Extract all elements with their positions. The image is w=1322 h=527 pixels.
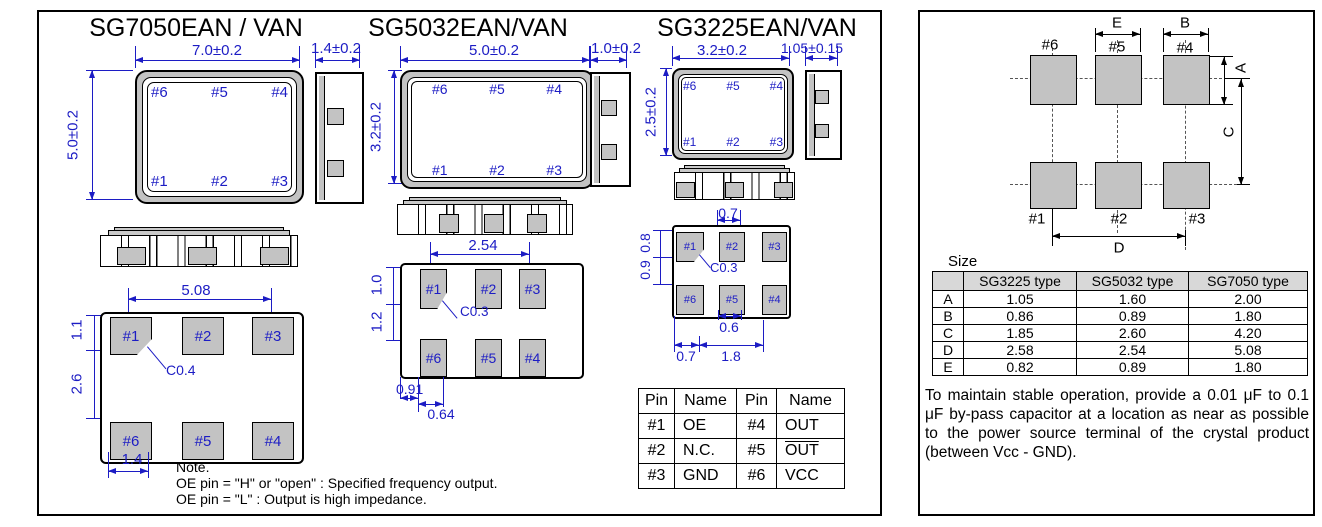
dim-label-c: C <box>1221 127 1238 138</box>
lid-edge <box>594 76 600 183</box>
pin-label: #2 <box>726 135 739 149</box>
pin-label: #4 <box>271 84 288 101</box>
size-table-cell: 0.86 <box>964 308 1077 325</box>
sg5032-top-view: #6 #5 #4 #1 #2 #3 <box>400 70 594 189</box>
sg5032-title: SG5032EAN/VAN <box>368 14 568 43</box>
dim-ext-line <box>1185 230 1186 246</box>
pin-table-cell: VCC <box>777 464 845 489</box>
pin-label: #6 <box>683 79 696 93</box>
sg3225-side-view <box>805 70 842 160</box>
size-table-cell: 1.80 <box>1189 359 1308 376</box>
castellation <box>815 124 829 138</box>
dim-arrow-a <box>1224 57 1225 105</box>
terminal-pad <box>484 214 504 233</box>
pin-label: #3 <box>271 173 288 190</box>
size-table-cell: 4.20 <box>1189 325 1308 342</box>
pin-table-header: Name <box>777 389 845 414</box>
sg5032-side-dim: 1.0±0.2 <box>591 40 641 57</box>
dim-ext-line <box>86 70 133 71</box>
size-table-header <box>933 272 964 291</box>
pin-table-cell: #1 <box>639 414 675 439</box>
size-table-cell: B <box>933 308 964 325</box>
sg7050-pad-width-dim: 1.4 <box>122 451 143 468</box>
size-table-cell: D <box>933 342 964 359</box>
dim-ext-line <box>86 199 133 200</box>
castellation <box>327 160 344 177</box>
size-table-cell: E <box>933 359 964 376</box>
dim-label-b: B <box>1180 15 1190 32</box>
dim-line <box>400 60 590 61</box>
pin-table-cell: #3 <box>639 464 675 489</box>
note-heading: Note. <box>176 459 497 475</box>
dim-arrow-c <box>1241 79 1242 185</box>
terminal-pad <box>188 247 217 265</box>
note-line: OE pin = "L" : Output is high impedance. <box>176 491 497 507</box>
size-table-cell: 1.80 <box>1189 308 1308 325</box>
sg7050-top-view: #6 #5 #4 #1 #2 #3 <box>135 70 304 204</box>
size-table-header: SG5032 type <box>1077 272 1189 291</box>
land-pad-label: #1 <box>1029 211 1046 228</box>
dim-ext-line <box>1208 28 1209 52</box>
pin-table-cell: OE <box>675 414 737 439</box>
pin-table-header: Pin <box>737 389 777 414</box>
dim-ext-line <box>741 310 742 320</box>
solder-pad: #2 <box>719 232 745 262</box>
sg3225-chamfer-label: C0.3 <box>710 260 737 275</box>
solder-pad: #3 <box>519 269 546 309</box>
solder-pad: #1 <box>676 232 704 262</box>
pin-label: #6 <box>151 84 168 101</box>
sg5032-pad-span-dim: 2.54 <box>468 237 497 254</box>
sg5032-pad-width-dim: 0.64 <box>427 406 454 422</box>
sg3225-bottom-dim2: 1.8 <box>721 348 740 364</box>
pin-label: #3 <box>546 162 562 178</box>
size-table-cell: 0.82 <box>964 359 1077 376</box>
terminal-pad <box>527 214 547 233</box>
solder-pad: #5 <box>182 422 224 460</box>
land-pad-label: #5 <box>1109 39 1126 56</box>
pin-table-cell: OUT <box>777 414 845 439</box>
sg3225-height-dim: 2.5±0.2 <box>643 87 660 137</box>
solder-pad: #1 <box>110 317 152 355</box>
pin-table: Pin Name Pin Name #1 OE #4 OUT #2 N.C. #… <box>638 388 845 489</box>
sg7050-side-dim: 1.4±0.2 <box>311 40 361 57</box>
sg7050-height-dim: 5.0±0.2 <box>65 110 82 160</box>
pin-label: #2 <box>211 173 228 190</box>
land-pad <box>1030 162 1077 209</box>
terminal-pad <box>117 247 146 265</box>
lid-edge <box>809 74 815 156</box>
dim-ext-line <box>271 288 272 314</box>
size-table-cell: 1.85 <box>964 325 1077 342</box>
pin-label: #2 <box>489 162 505 178</box>
pin-label: #1 <box>151 173 168 190</box>
sg5032-bottom-view: #1 #2 #3 #6 #5 #4 <box>400 263 584 379</box>
lid-edge <box>319 76 325 200</box>
pin-label: #5 <box>211 84 228 101</box>
solder-pad: #6 <box>420 339 447 377</box>
note-line: OE pin = "H" or "open" : Specified frequ… <box>176 475 497 491</box>
pin-table-cell: #5 <box>737 439 777 464</box>
dim-line <box>674 345 699 346</box>
pin-label: #6 <box>432 81 448 97</box>
sg3225-width-dim: 3.2±0.2 <box>697 42 747 59</box>
sg3225-side-dim: 1.05±0.15 <box>781 40 843 56</box>
sg7050-front-view <box>100 227 298 267</box>
dim-line <box>590 60 627 61</box>
castellation <box>815 90 829 104</box>
sg5032-front-view <box>397 197 573 235</box>
land-pad-label: #3 <box>1189 211 1206 228</box>
sg7050-row-gap-dim: 2.6 <box>69 374 86 395</box>
terminal-pad <box>676 182 695 198</box>
dim-ext-line <box>1052 209 1053 246</box>
dim-line <box>718 316 741 317</box>
land-pad-label: #6 <box>1042 37 1059 54</box>
dim-line <box>315 60 360 61</box>
sg7050-chamfer-label: C0.4 <box>166 362 196 378</box>
sg7050-pad-height-dim: 1.1 <box>69 320 86 341</box>
dim-line <box>128 299 271 300</box>
sg3225-pad-height-dim: 0.8 <box>637 233 653 252</box>
dim-ext-line <box>653 257 674 258</box>
solder-pad: #4 <box>519 339 546 377</box>
size-table-cell: A <box>933 291 964 308</box>
sg5032-height-dim: 3.2±0.2 <box>368 102 385 152</box>
dim-line <box>135 60 300 61</box>
dim-line <box>400 398 418 399</box>
dim-ext-line <box>108 452 109 478</box>
size-table-cell: 1.05 <box>964 291 1077 308</box>
dim-arrow-b <box>1163 34 1208 35</box>
castellation <box>327 108 344 125</box>
sg5032-width-dim: 5.0±0.2 <box>469 42 519 59</box>
terminal-pad <box>439 214 459 233</box>
land-pad <box>1095 162 1142 209</box>
size-table-cell: 0.89 <box>1077 359 1189 376</box>
dim-line <box>717 220 740 221</box>
dim-arrow-e <box>1095 34 1140 35</box>
dim-line <box>430 254 529 255</box>
dim-label-e: E <box>1112 15 1122 32</box>
land-pad <box>1030 55 1077 105</box>
dim-label-a: A <box>1233 63 1250 73</box>
terminal-pad <box>260 247 289 265</box>
datasheet-page: SG7050EAN / VAN 7.0±0.2 1.4±0.2 5.0±0.2 … <box>0 0 1322 527</box>
bypass-capacitor-note: To maintain stable operation, provide a … <box>925 386 1309 462</box>
pin-label: #4 <box>770 79 783 93</box>
dim-ext-line <box>148 452 149 478</box>
dim-ext-line <box>660 155 672 156</box>
pin-table-cell: GND <box>675 464 737 489</box>
pin-table-cell: N.C. <box>675 439 737 464</box>
size-table-cell: 1.60 <box>1077 291 1189 308</box>
dim-ext-line <box>763 320 764 352</box>
size-table-cell: 2.58 <box>964 342 1077 359</box>
dim-line <box>92 70 93 200</box>
solder-pad: #6 <box>676 285 704 315</box>
dim-arrow-d <box>1052 236 1185 237</box>
sg5032-chamfer-label: C0.3 <box>460 304 489 319</box>
dim-line <box>94 315 95 418</box>
pin-label: #1 <box>432 162 448 178</box>
dim-ext-line <box>653 230 674 231</box>
dim-label-d: D <box>1114 240 1125 257</box>
dim-line <box>805 58 837 59</box>
castellation <box>601 100 617 116</box>
size-table-cell: 5.08 <box>1189 342 1308 359</box>
sg7050-pad-span-dim: 5.08 <box>181 282 210 299</box>
solder-pad: #3 <box>762 232 787 262</box>
pin-table-cell: #4 <box>737 414 777 439</box>
land-pad-label: #2 <box>1111 211 1128 228</box>
size-table-cell: 2.00 <box>1189 291 1308 308</box>
land-pad-label: #4 <box>1177 40 1194 57</box>
terminal-pad <box>774 182 793 198</box>
sg7050-bottom-view: #1 #2 #3 #6 #5 #4 <box>100 312 304 464</box>
note-block: Note. OE pin = "H" or "open" : Specified… <box>176 459 497 507</box>
pin-label: #1 <box>683 135 696 149</box>
solder-pad: #2 <box>475 269 502 309</box>
pin-label: #5 <box>489 81 505 97</box>
size-table-header: SG3225 type <box>964 272 1077 291</box>
size-table-cell: 2.54 <box>1077 342 1189 359</box>
dim-line <box>699 345 763 346</box>
solder-pad: #5 <box>475 339 502 377</box>
dim-line <box>394 70 395 184</box>
dim-ext-line <box>837 46 838 66</box>
sg5032-pad-height-dim: 1.0 <box>369 275 386 296</box>
dim-ext-line <box>653 284 674 285</box>
castellation <box>601 144 617 160</box>
size-table-cell: 2.60 <box>1077 325 1189 342</box>
land-pad <box>1163 162 1210 209</box>
pin-label: #3 <box>770 135 783 149</box>
land-pad <box>1095 55 1142 105</box>
dim-line <box>666 68 667 156</box>
dim-ext-line <box>388 70 402 71</box>
size-table-caption: Size <box>948 253 977 270</box>
pin-table-cell: #2 <box>639 439 675 464</box>
pin-label: #4 <box>546 81 562 97</box>
dim-ext-line <box>388 183 402 184</box>
pin-table-cell-out-bar: OUT <box>777 439 845 464</box>
solder-pad: #4 <box>252 422 294 460</box>
pin-table-header: Name <box>675 389 737 414</box>
sg3225-row-gap-dim: 0.9 <box>637 260 653 279</box>
solder-pad: #2 <box>182 317 224 355</box>
pin-table-cell: #6 <box>737 464 777 489</box>
terminal-pad <box>725 182 744 198</box>
sg7050-width-dim: 7.0±0.2 <box>192 42 242 59</box>
sg3225-top-view: #6 #5 #4 #1 #2 #3 <box>672 68 794 160</box>
pin-table-header: Pin <box>639 389 675 414</box>
dim-line <box>108 471 148 472</box>
size-table-header: SG7050 type <box>1189 272 1308 291</box>
size-table: SG3225 type SG5032 type SG7050 type A 1.… <box>932 271 1308 376</box>
dim-ext-line <box>1140 28 1141 52</box>
size-table-cell: C <box>933 325 964 342</box>
sg3225-front-view <box>674 165 795 200</box>
sg3225-title: SG3225EAN/VAN <box>657 14 857 43</box>
pin-label: #5 <box>726 79 739 93</box>
solder-pad: #3 <box>252 317 294 355</box>
sg5032-side-view <box>590 72 631 187</box>
dim-line <box>672 58 789 59</box>
sg3225-pad5-width-dim: 0.6 <box>719 319 738 335</box>
sg3225-bottom-dim1: 0.7 <box>676 348 695 364</box>
dim-ext-line <box>443 377 444 407</box>
sg5032-row-gap-dim: 1.2 <box>369 312 386 333</box>
land-pad <box>1163 55 1210 105</box>
solder-pad: #4 <box>762 285 787 315</box>
dim-ext-line <box>660 68 672 69</box>
sg7050-title: SG7050EAN / VAN <box>89 14 303 43</box>
sg7050-side-view <box>315 72 364 204</box>
size-table-cell: 0.89 <box>1077 308 1189 325</box>
